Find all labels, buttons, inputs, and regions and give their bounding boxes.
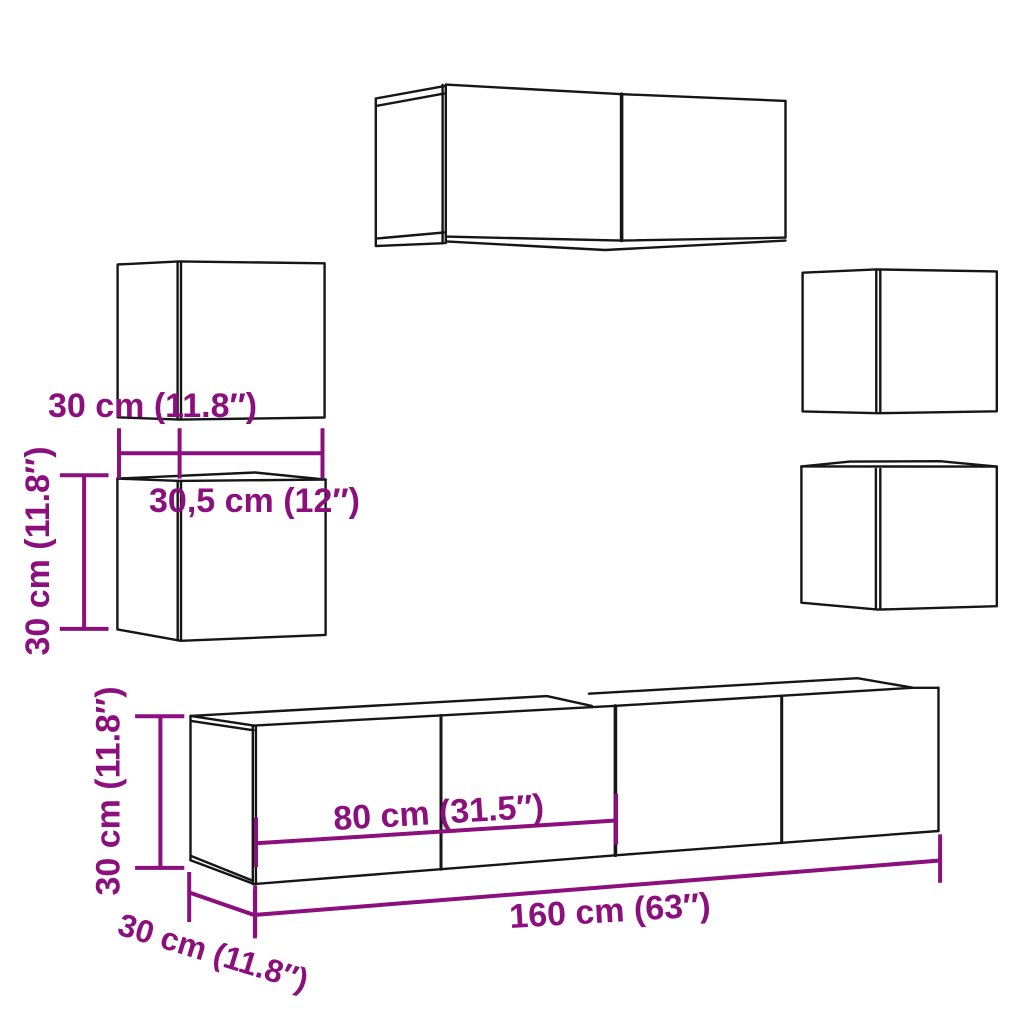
svg-text:30 cm (11.8″): 30 cm (11.8″)	[19, 446, 57, 655]
svg-text:30,5 cm (12″): 30,5 cm (12″)	[149, 482, 360, 520]
svg-text:30 cm (11.8″): 30 cm (11.8″)	[90, 686, 128, 895]
svg-text:30 cm (11.8″): 30 cm (11.8″)	[48, 387, 257, 425]
